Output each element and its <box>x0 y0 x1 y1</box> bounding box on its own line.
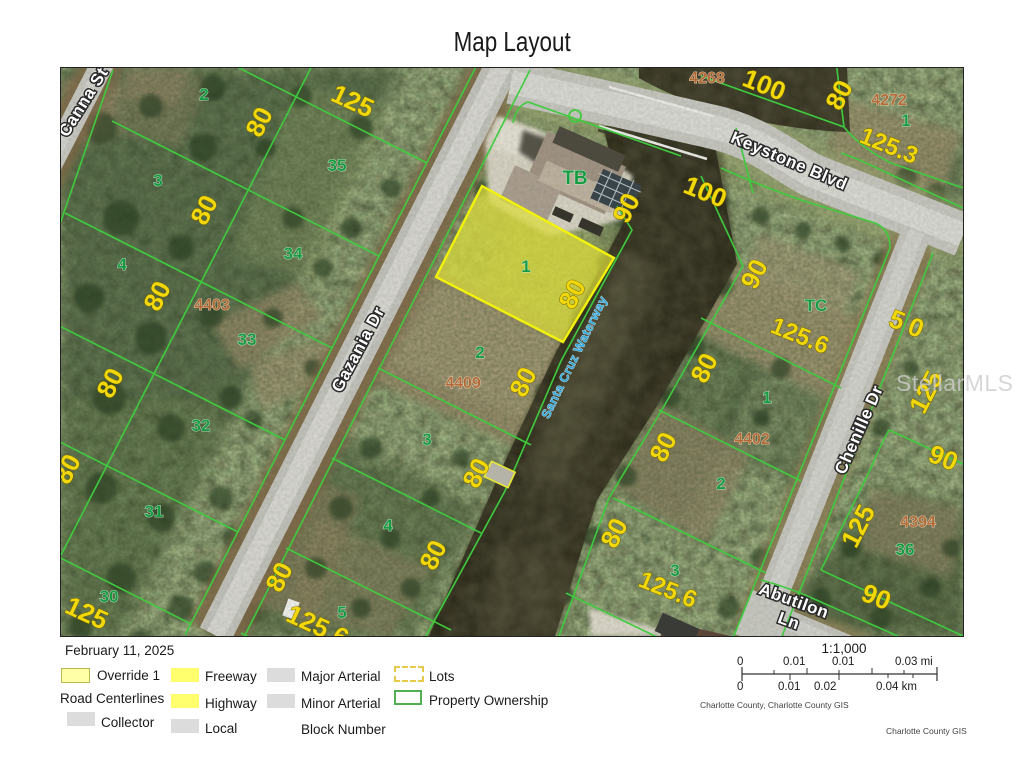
svg-text:4409: 4409 <box>445 375 481 392</box>
svg-text:35: 35 <box>328 156 347 175</box>
svg-text:36: 36 <box>896 540 915 559</box>
svg-text:5: 5 <box>337 603 346 622</box>
svg-text:4268: 4268 <box>689 70 725 87</box>
svg-text:30: 30 <box>100 587 119 606</box>
svg-text:TC: TC <box>805 296 828 315</box>
svg-text:4: 4 <box>383 516 393 535</box>
svg-text:1: 1 <box>901 111 910 130</box>
svg-text:3: 3 <box>670 561 679 580</box>
svg-text:TB: TB <box>562 168 587 189</box>
svg-text:2: 2 <box>716 474 725 493</box>
svg-text:4402: 4402 <box>734 431 770 448</box>
svg-text:2: 2 <box>199 85 208 104</box>
svg-text:3: 3 <box>422 430 431 449</box>
svg-text:32: 32 <box>192 416 211 435</box>
svg-text:3: 3 <box>153 171 162 190</box>
svg-text:4272: 4272 <box>871 92 907 109</box>
svg-text:4394: 4394 <box>900 514 936 531</box>
svg-text:31: 31 <box>145 502 164 521</box>
svg-text:1: 1 <box>521 257 530 276</box>
svg-text:34: 34 <box>284 244 303 263</box>
svg-text:4403: 4403 <box>194 297 230 314</box>
svg-text:1: 1 <box>762 388 771 407</box>
svg-text:33: 33 <box>238 330 257 349</box>
svg-text:4: 4 <box>117 255 127 274</box>
svg-text:2: 2 <box>475 343 484 362</box>
